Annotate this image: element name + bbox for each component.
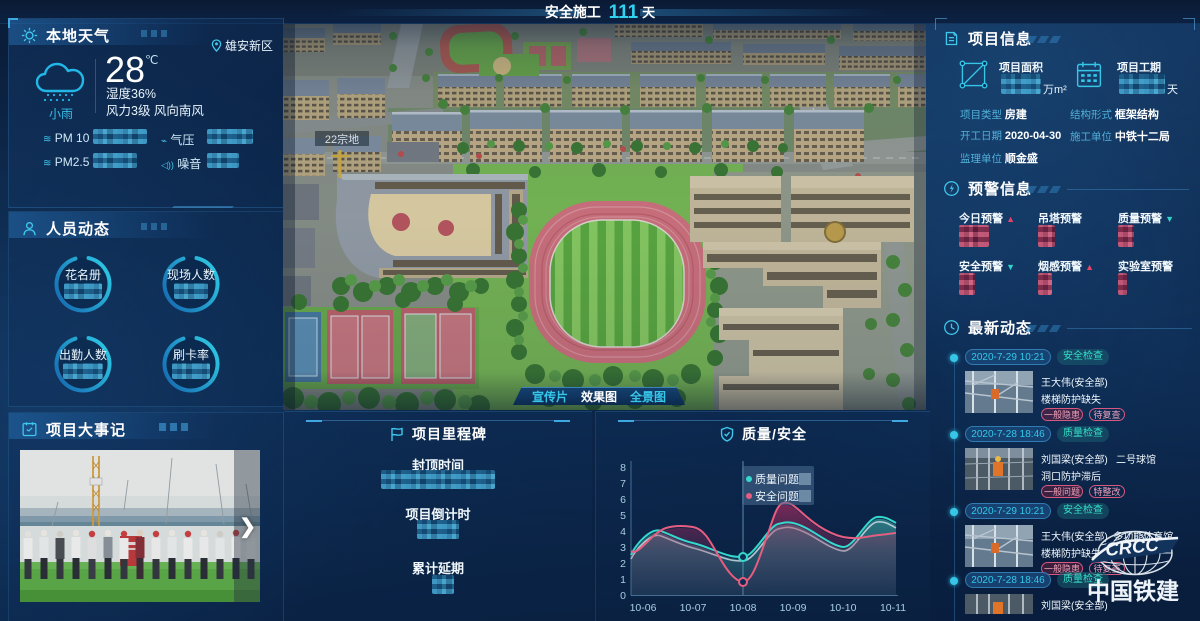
svg-text:4: 4 bbox=[620, 526, 626, 538]
svg-text:10-11: 10-11 bbox=[880, 602, 906, 614]
svg-text:10-09: 10-09 bbox=[780, 602, 807, 614]
svg-text:8: 8 bbox=[620, 462, 626, 474]
svg-text:6: 6 bbox=[620, 494, 626, 506]
svg-text:3: 3 bbox=[620, 542, 626, 554]
svg-text:CRCC: CRCC bbox=[1104, 533, 1160, 560]
svg-text:10-08: 10-08 bbox=[730, 602, 757, 614]
svg-text:5: 5 bbox=[620, 510, 626, 522]
svg-text:10-06: 10-06 bbox=[630, 602, 657, 614]
svg-text:2: 2 bbox=[620, 558, 626, 570]
svg-text:1: 1 bbox=[620, 574, 626, 586]
svg-text:0: 0 bbox=[620, 590, 626, 602]
svg-text:中国铁建: 中国铁建 bbox=[1087, 578, 1179, 604]
svg-text:10-07: 10-07 bbox=[680, 602, 707, 614]
svg-text:10-10: 10-10 bbox=[830, 602, 857, 614]
svg-text:7: 7 bbox=[620, 478, 626, 490]
svg-text:质量问题: 质量问题 bbox=[755, 473, 799, 486]
svg-text:安全问题: 安全问题 bbox=[755, 489, 799, 503]
